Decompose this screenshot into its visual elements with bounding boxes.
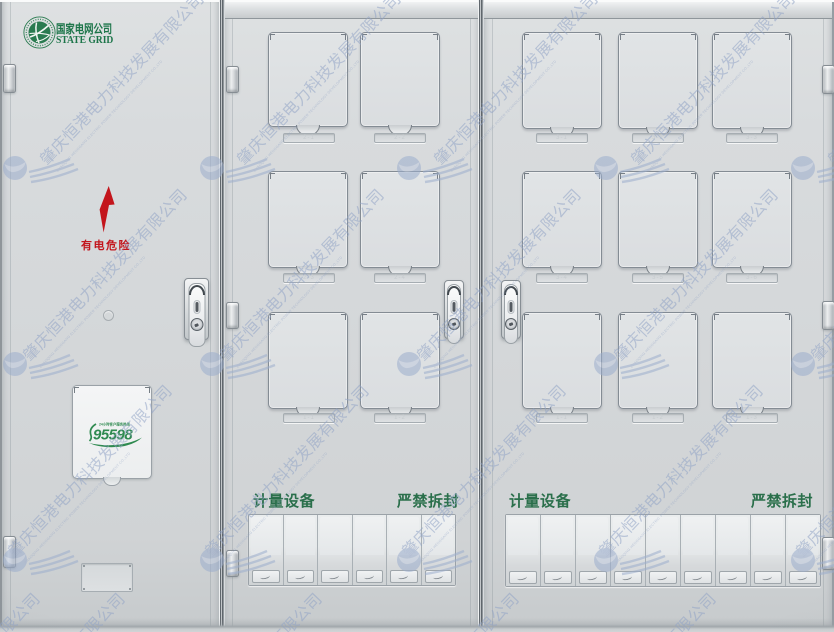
svg-text:95598: 95598 [93, 427, 133, 444]
svg-text:24小时客户服务热线: 24小时客户服务热线 [99, 422, 131, 427]
